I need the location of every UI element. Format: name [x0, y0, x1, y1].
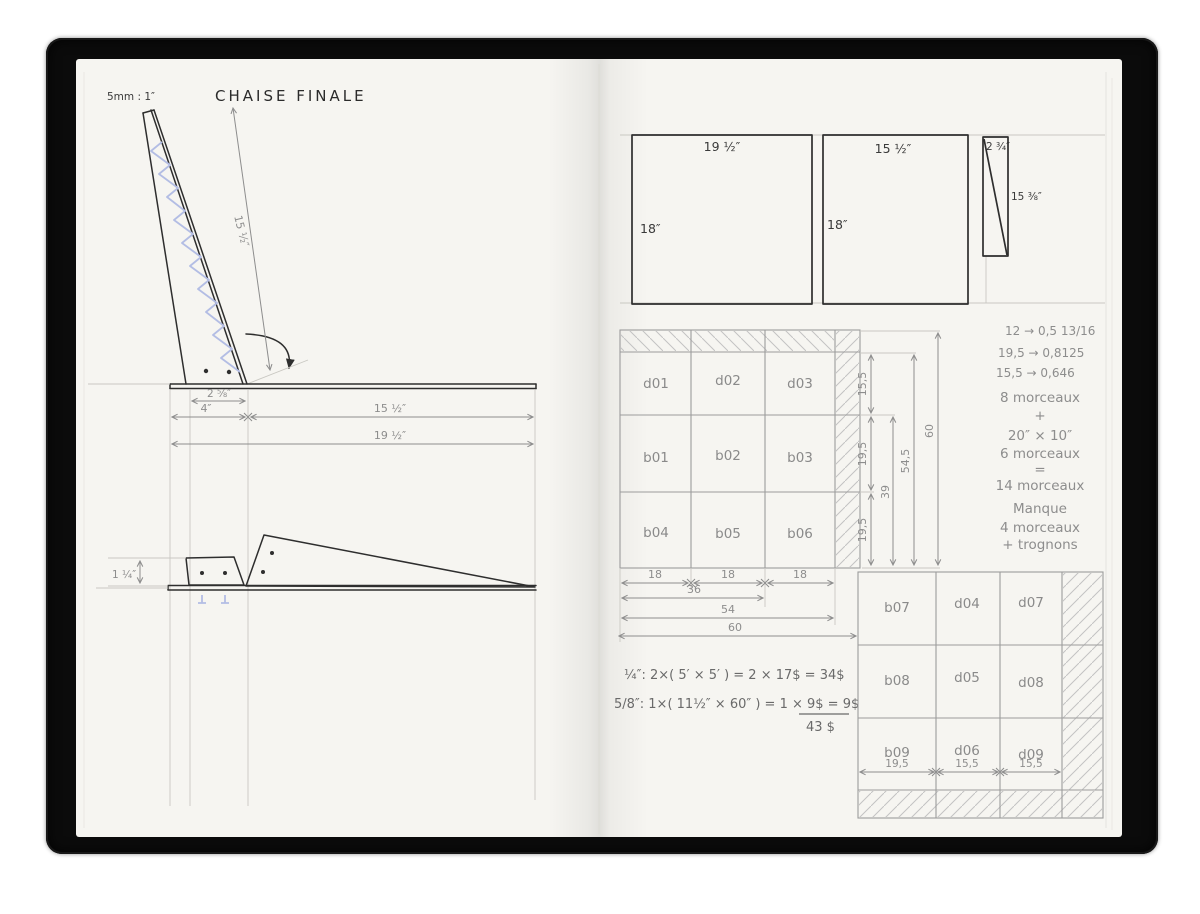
note-line: Manque — [1013, 501, 1067, 517]
cut-grid-top: d01 d02 d03 b01 b02 b03 b04 b05 b06 — [620, 330, 860, 568]
seat-dim-label: 15 ½″ — [374, 402, 406, 415]
board-edge — [168, 586, 536, 591]
conversion-line-3: 15,5 → 0,646 — [996, 366, 1075, 380]
waste-strip-bottom — [859, 791, 1102, 817]
conversion-line-2: 19,5 → 0,8125 — [998, 346, 1084, 360]
screw-marks-blue — [198, 595, 229, 603]
panel-2-height-label: 18″ — [827, 217, 848, 232]
thickness-dimension: 1 ¼″ — [108, 558, 186, 586]
cut-grid-top-vdims: 15,5 19,5 19,5 39 54,5 60 — [856, 331, 940, 568]
cell-label: b01 — [643, 450, 669, 466]
cell-label: d04 — [954, 596, 980, 612]
folded-view — [96, 535, 536, 603]
cost-calculations: ¼″: 2×( 5′ × 5′ ) = 2 × 17$ = 34$ 5/8″: … — [614, 668, 859, 735]
hdim-36: 36 — [687, 583, 701, 596]
bdim-155b: 15,5 — [1019, 758, 1042, 770]
cost-total: 43 $ — [806, 720, 835, 735]
thickness-dim-label: 1 ¼″ — [112, 569, 136, 581]
hdim-18a: 18 — [648, 568, 662, 581]
cut-grid-top-hdims: 18 18 18 36 54 60 — [619, 568, 856, 642]
hdim-18c: 18 — [793, 568, 807, 581]
conversion-line-1: 12 → 0,5 13/16 — [1005, 324, 1095, 338]
panel-3-height-label: 15 ⅜″ — [1011, 191, 1042, 203]
cell-label: d02 — [715, 373, 741, 389]
right-page-drawing: 19 ½″ 18″ 15 ½″ 18″ 2 ¾″ 15 ⅜″ 12 → 0,5 … — [614, 135, 1105, 818]
panel-1 — [632, 135, 812, 304]
scanned-sketchbook: 5mm : 1″ CHAISE FINALE 15 ½″ — [0, 0, 1200, 914]
panel-1-height-label: 18″ — [640, 221, 661, 236]
backrest-screws — [204, 369, 231, 374]
cell-label: b08 — [884, 673, 910, 689]
wedge-outline — [246, 535, 535, 587]
cut-grid-bottom: b07 d04 d07 b08 d05 d08 b09 d06 d09 19,5… — [858, 572, 1103, 818]
panel-2-width-label: 15 ½″ — [875, 141, 912, 156]
cell-label: b06 — [787, 526, 813, 542]
note-line: + trognons — [1002, 537, 1077, 553]
panel-1-width-label: 19 ½″ — [704, 139, 741, 154]
hdim-60: 60 — [728, 621, 742, 634]
total-dim-label: 19 ½″ — [374, 429, 406, 442]
folded-position-guide — [247, 360, 308, 384]
cell-label: d07 — [1018, 595, 1044, 611]
drawing-title: CHAISE FINALE — [215, 87, 367, 105]
hdim-18b: 18 — [721, 568, 735, 581]
cleat-outline — [186, 557, 244, 585]
pieces-notes: 8 morceaux + 20″ × 10″ 6 morceaux = 14 m… — [996, 390, 1085, 553]
cell-label: d06 — [954, 743, 980, 759]
cost-line-1: ¼″: 2×( 5′ × 5′ ) = 2 × 17$ = 34$ — [624, 668, 845, 683]
note-line: 14 morceaux — [996, 478, 1085, 494]
vdim-60: 60 — [923, 424, 936, 438]
cell-label: d01 — [643, 376, 669, 392]
sketch-drawing: 5mm : 1″ CHAISE FINALE 15 ½″ — [0, 0, 1200, 914]
left-page-drawing: 5mm : 1″ CHAISE FINALE 15 ½″ — [88, 87, 536, 806]
cell-label: b04 — [643, 525, 669, 541]
backrest-dimension: 15 ½″ — [231, 108, 270, 370]
note-line: + — [1034, 408, 1045, 424]
vdim-195a: 19,5 — [856, 442, 869, 467]
panel-guides — [620, 135, 1105, 303]
seat-board — [88, 384, 536, 389]
front-dim-label: 4″ — [200, 402, 211, 415]
note-line: 4 morceaux — [1000, 520, 1080, 536]
bdim-155a: 15,5 — [955, 758, 978, 770]
note-line: 8 morceaux — [1000, 390, 1080, 406]
panel-rectangles: 19 ½″ 18″ 15 ½″ 18″ 2 ¾″ 15 ⅜″ — [632, 135, 1042, 304]
seat-dimensions: 2 ⅝″ 4″ 15 ½″ 19 ½″ — [172, 388, 533, 444]
panel-3-width-label: 2 ¾″ — [986, 141, 1010, 153]
note-line: = — [1034, 462, 1045, 478]
vdim-155: 15,5 — [856, 372, 869, 397]
bdim-195: 19,5 — [885, 758, 908, 770]
note-line: 6 morceaux — [1000, 446, 1080, 462]
cell-label: d08 — [1018, 675, 1044, 691]
cell-label: b05 — [715, 526, 741, 542]
conversion-notes: 12 → 0,5 13/16 19,5 → 0,8125 15,5 → 0,64… — [996, 324, 1095, 380]
cost-line-2: 5/8″: 1×( 11½″ × 60″ ) = 1 × 9$ = 9$ — [614, 697, 859, 712]
vdim-195b: 19,5 — [856, 518, 869, 543]
cell-label: d03 — [787, 376, 813, 392]
vdim-39: 39 — [879, 485, 892, 499]
hdim-54: 54 — [721, 603, 735, 616]
waste-strip-right-2 — [1063, 573, 1102, 790]
backrest-outline — [143, 110, 247, 384]
cell-label: d05 — [954, 670, 980, 686]
note-line: 20″ × 10″ — [1008, 428, 1072, 444]
waste-strip-top — [621, 331, 834, 351]
vdim-545: 54,5 — [899, 449, 912, 474]
cleat-dim-label: 2 ⅝″ — [207, 388, 231, 400]
cell-label: b07 — [884, 600, 910, 616]
scale-note: 5mm : 1″ — [107, 91, 155, 103]
cell-label: b03 — [787, 450, 813, 466]
cell-label: b02 — [715, 448, 741, 464]
panel-3-diagonal — [984, 139, 1007, 255]
